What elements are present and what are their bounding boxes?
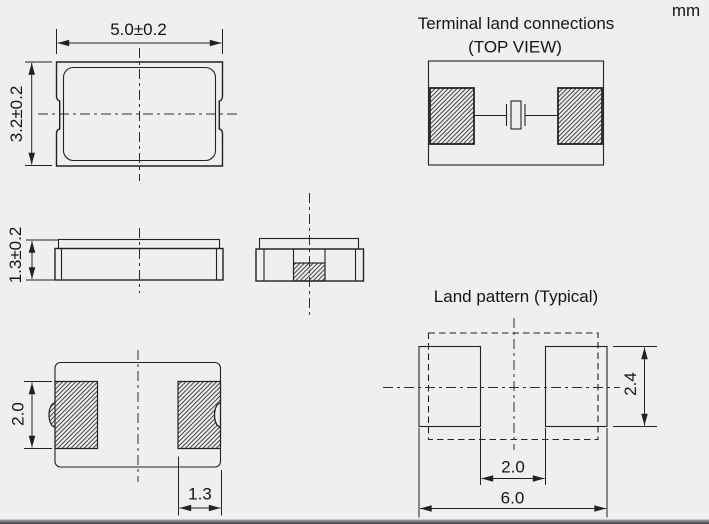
dimension-label: 2.0 (8, 402, 27, 426)
dimension-label: 3.2±0.2 (7, 86, 26, 143)
bottom-edge-bar (0, 520, 709, 524)
dimension-label: 2.4 (621, 372, 640, 396)
terminal-2-pad (558, 88, 602, 144)
left-terminal-pad (49, 382, 98, 449)
dimension-label: 1.3±0.2 (6, 227, 25, 284)
view-title: Terminal land connections (418, 14, 615, 33)
technical-drawing: 5.0±0.2 3.2±0.2 1.3±0.2 (0, 0, 709, 524)
dimension-label: 1.3 (188, 485, 212, 504)
view-title: Land pattern (Typical) (434, 287, 598, 306)
dimension-label: 5.0±0.2 (110, 20, 167, 39)
dimension-label: 2.0 (501, 458, 525, 477)
unit-label: mm (672, 1, 700, 20)
terminal-1-pad (430, 88, 474, 144)
view-subtitle: (TOP VIEW) (468, 38, 562, 57)
drawing-background (0, 0, 709, 524)
dimension-label: 6.0 (501, 489, 525, 508)
